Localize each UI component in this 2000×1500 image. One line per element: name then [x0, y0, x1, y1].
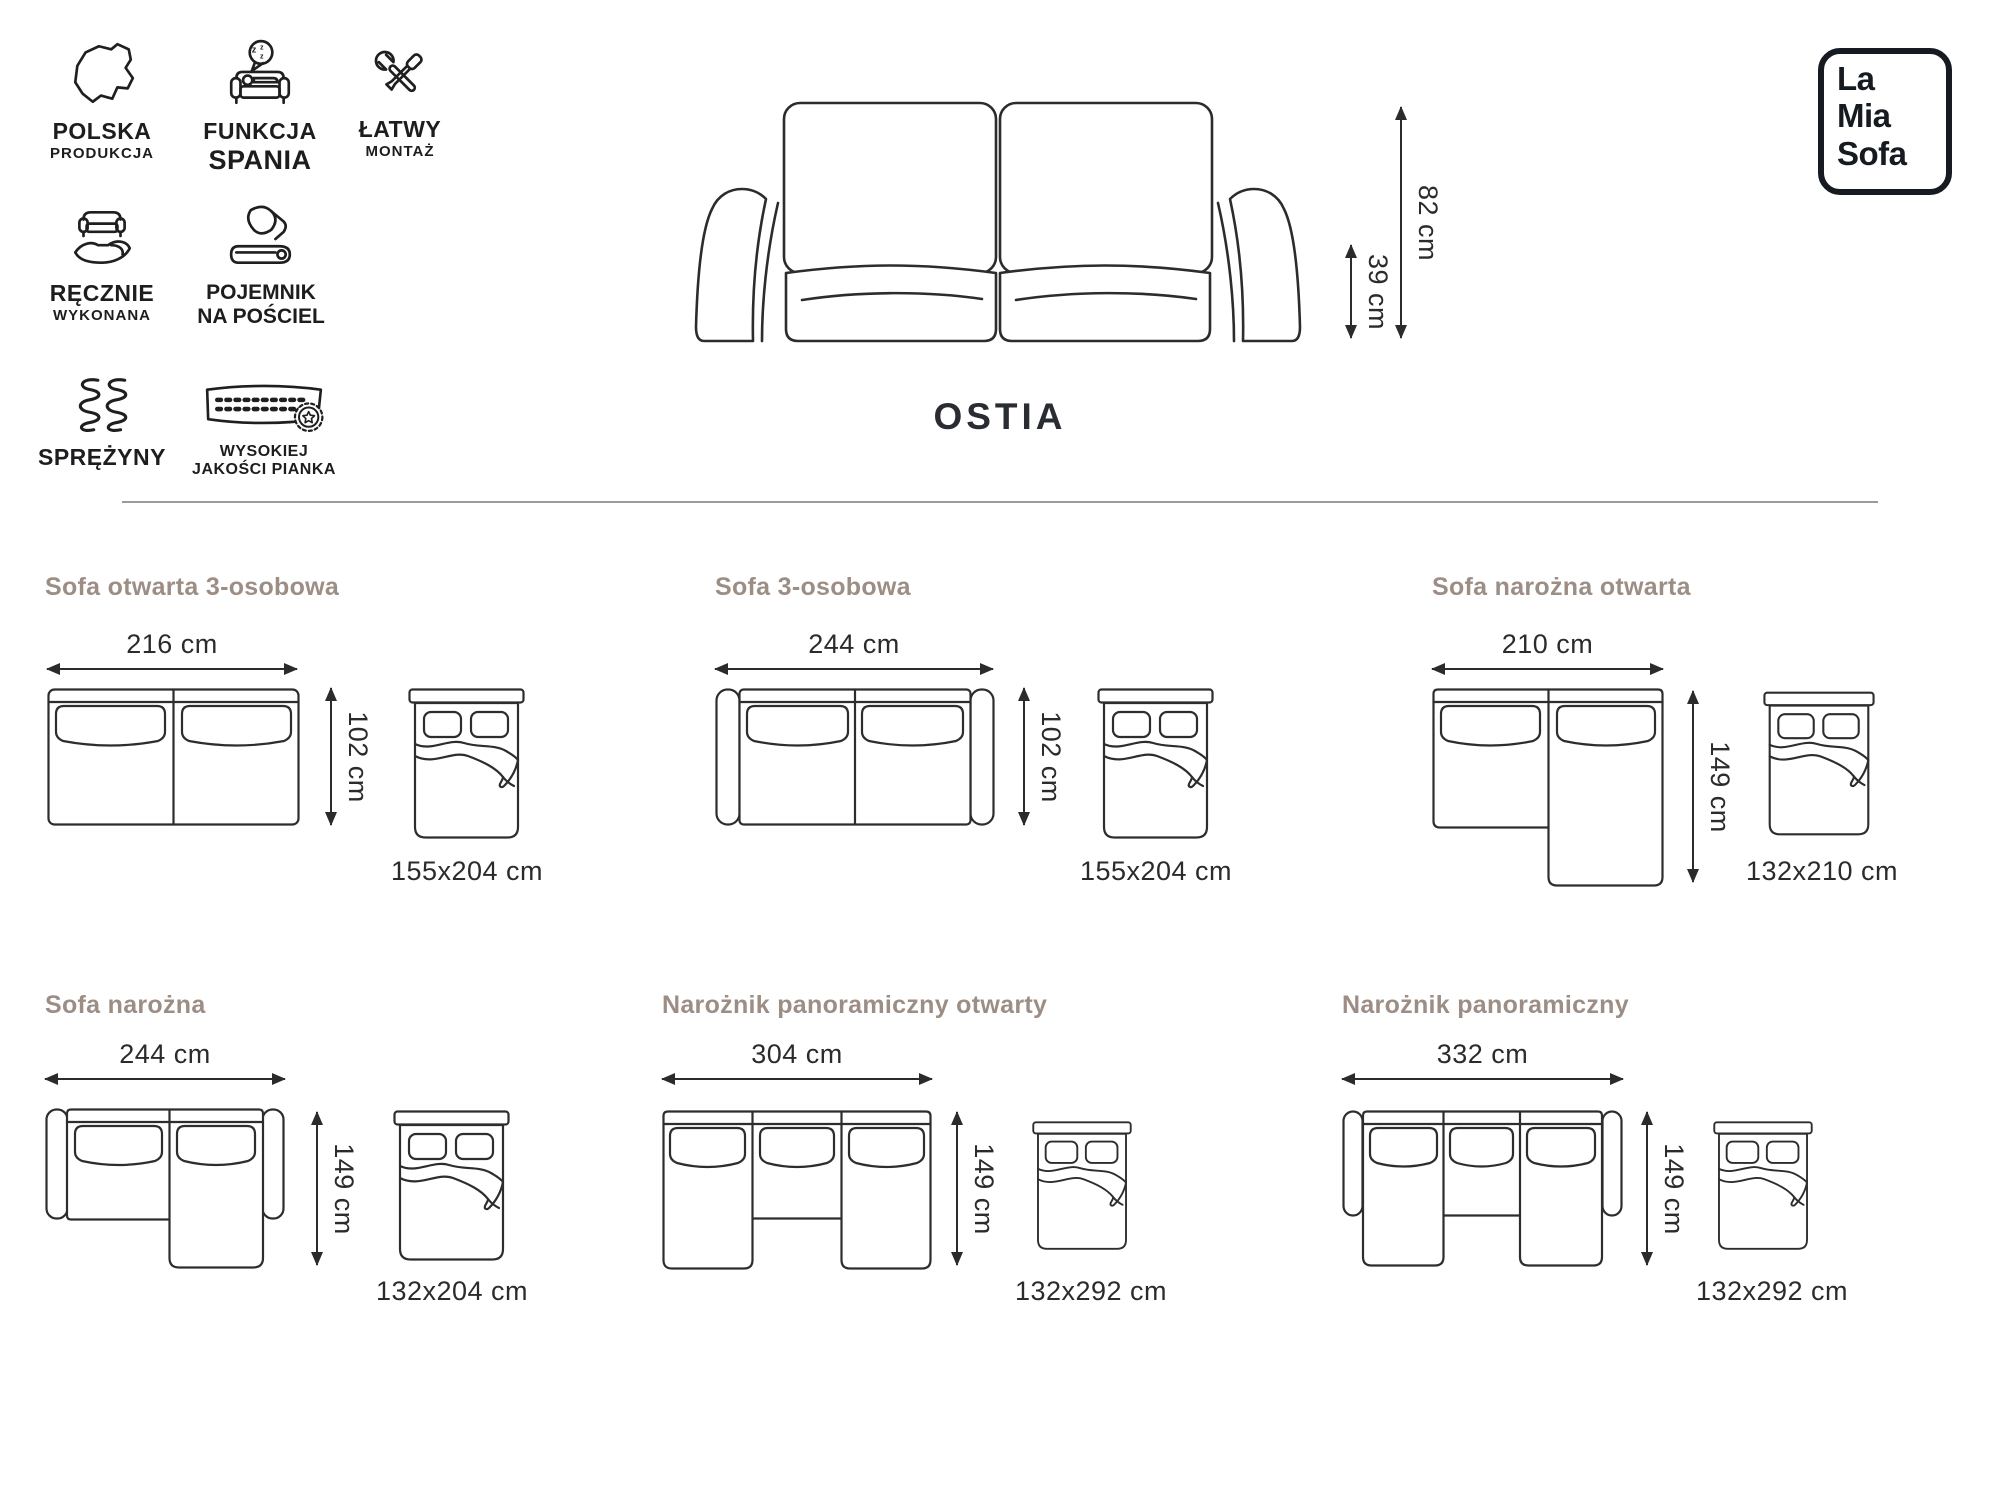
springs-icon [33, 372, 171, 438]
bed-size-label: 132x292 cm [1001, 1276, 1181, 1307]
depth-dimension: 149 cm [1646, 1112, 1648, 1265]
poland-map-icon [33, 36, 171, 112]
config-title: Sofa otwarta 3-osobowa [45, 573, 339, 602]
feature-latwy-montaz: ŁATWY MONTAŻ [336, 42, 464, 160]
depth-label: 102 cm [342, 711, 373, 803]
brand-logo: La Mia Sofa [1818, 48, 1952, 195]
width-dimension: 332 cm [1342, 1078, 1623, 1080]
svg-text:z: z [260, 42, 264, 51]
width-dimension: 304 cm [662, 1078, 932, 1080]
config-title: Sofa narożna [45, 991, 206, 1020]
depth-label: 149 cm [328, 1143, 359, 1235]
depth-dimension: 149 cm [956, 1112, 958, 1265]
easy-assembly-icon [336, 42, 464, 110]
feature-sublabel: SPANIA [190, 145, 330, 177]
sleep-function-icon: z z z [190, 36, 330, 112]
dimension-arrow [715, 668, 993, 670]
width-dimension: 244 cm [715, 668, 993, 670]
feature-label: RĘCZNIE [33, 281, 171, 307]
feature-sprezyny: SPRĘŻYNY [33, 372, 171, 471]
width-dimension: 210 cm [1432, 668, 1663, 670]
dimension-arrow [1023, 688, 1025, 825]
bed-icon [1763, 688, 1875, 845]
feature-polska-produkcja: POLSKA PRODUKCJA [33, 36, 171, 162]
feature-sublabel: WYKONANA [33, 307, 171, 325]
feature-pojemnik-na-posciel: POJEMNIK NA POŚCIEL [183, 202, 339, 329]
width-label: 332 cm [1342, 1039, 1623, 1070]
bed-icon [1097, 688, 1214, 845]
width-dimension: 216 cm [47, 668, 297, 670]
sofa-top-view [1342, 1110, 1623, 1272]
bed-icon [1713, 1110, 1813, 1267]
section-divider [122, 501, 1878, 503]
dimension-arrow [1646, 1112, 1648, 1265]
dimension-arrow [1400, 107, 1402, 338]
bed-size-label: 155x204 cm [377, 856, 557, 887]
feature-label: POJEMNIK [183, 281, 339, 305]
depth-dimension: 102 cm [1023, 688, 1025, 825]
width-label: 304 cm [662, 1039, 932, 1070]
bed-icon [1032, 1110, 1132, 1267]
depth-dimension: 102 cm [330, 688, 332, 825]
feature-sublabel: PRODUKCJA [33, 145, 171, 163]
svg-text:z: z [252, 44, 257, 54]
width-dimension: 244 cm [45, 1078, 285, 1080]
bedding-storage-icon [183, 202, 339, 274]
feature-label: SPRĘŻYNY [33, 445, 171, 471]
logo-line: La [1837, 60, 1946, 97]
feature-funkcja-spania: z z z FUNKCJA SPANIA [190, 36, 330, 177]
svg-text:z: z [260, 52, 264, 61]
foam-quality-icon [180, 378, 348, 436]
depth-label: 149 cm [1704, 741, 1735, 833]
bed-size-label: 132x210 cm [1732, 856, 1912, 887]
dimension-arrow [1342, 1078, 1623, 1080]
product-name: OSTIA [800, 396, 1200, 438]
sofa-top-view [715, 688, 995, 832]
width-label: 210 cm [1432, 629, 1663, 660]
dimension-arrow [330, 688, 332, 825]
dimension-arrow [1350, 245, 1352, 338]
dimension-arrow [47, 668, 297, 670]
bed-icon [393, 1110, 510, 1267]
depth-dimension: 149 cm [1692, 691, 1694, 882]
seat-height-label: 39 cm [1362, 253, 1393, 329]
feature-label: POLSKA [33, 119, 171, 145]
depth-dimension: 149 cm [316, 1112, 318, 1265]
bed-size-label: 132x292 cm [1682, 1276, 1862, 1307]
dimension-arrow [1432, 668, 1663, 670]
sofa-top-view [1432, 688, 1664, 892]
feature-wysokiej-jakosci-pianka: WYSOKIEJ JAKOŚCI PIANKA [180, 378, 348, 480]
sofa-top-view [47, 688, 300, 832]
feature-sublabel: JAKOŚCI PIANKA [180, 461, 348, 480]
dimension-arrow [956, 1112, 958, 1265]
logo-line: Mia [1837, 97, 1946, 134]
width-label: 244 cm [45, 1039, 285, 1070]
bed-icon [408, 688, 525, 845]
width-label: 216 cm [47, 629, 297, 660]
dimension-arrow [662, 1078, 932, 1080]
logo-line: Sofa [1837, 135, 1946, 172]
handmade-icon [33, 202, 171, 274]
dimension-arrow [1692, 691, 1694, 882]
feature-sublabel: MONTAŻ [336, 143, 464, 161]
dimension-arrow [45, 1078, 285, 1080]
depth-label: 149 cm [968, 1143, 999, 1235]
width-label: 244 cm [715, 629, 993, 660]
seat-height-dimension: 39 cm [1350, 245, 1352, 338]
sofa-front-view-drawing [690, 95, 1306, 348]
sofa-top-view [662, 1110, 932, 1275]
sofa-top-view [45, 1108, 285, 1275]
feature-recznie-wykonana: RĘCZNIE WYKONANA [33, 202, 171, 324]
feature-label: ŁATWY [336, 117, 464, 143]
product-spec-sheet: POLSKA PRODUKCJA z z z FUNKCJA SPANIA [0, 0, 2000, 1500]
feature-label: FUNKCJA [190, 119, 330, 145]
config-title: Sofa narożna otwarta [1432, 573, 1691, 602]
config-title: Narożnik panoramiczny [1342, 991, 1629, 1020]
feature-label: WYSOKIEJ [180, 443, 348, 461]
feature-sublabel: NA POŚCIEL [183, 305, 339, 330]
height-label: 82 cm [1412, 184, 1443, 260]
depth-label: 102 cm [1035, 711, 1066, 803]
config-title: Narożnik panoramiczny otwarty [662, 991, 1047, 1020]
dimension-arrow [316, 1112, 318, 1265]
config-title: Sofa 3-osobowa [715, 573, 911, 602]
bed-size-label: 132x204 cm [362, 1276, 542, 1307]
bed-size-label: 155x204 cm [1066, 856, 1246, 887]
depth-label: 149 cm [1658, 1143, 1689, 1235]
height-dimension: 82 cm [1400, 107, 1402, 338]
